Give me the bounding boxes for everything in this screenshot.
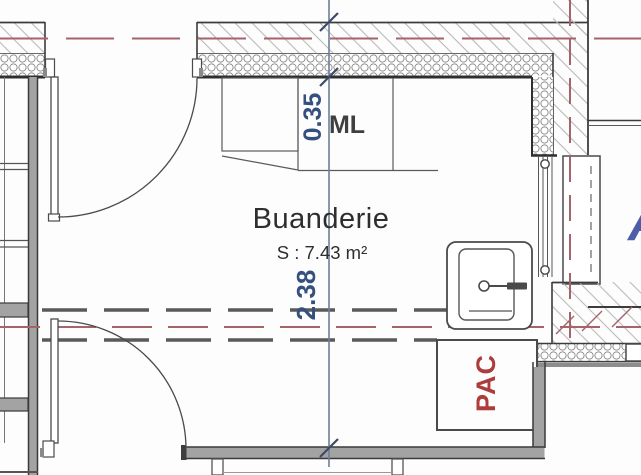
surface-area-label: S : 7.43 m² <box>277 242 367 263</box>
dim-room-width: 2.38 <box>291 270 321 321</box>
floor-plan-canvas: Buanderie S : 7.43 m² ML 0.35 2.38 PAC A <box>0 0 641 475</box>
opening-post <box>212 459 223 475</box>
dim-wall-thickness: 0.35 <box>299 93 327 142</box>
faucet-spout <box>507 283 527 290</box>
insulation-corner <box>533 77 553 156</box>
cabinet <box>222 78 298 151</box>
door-jamb <box>43 441 54 457</box>
opening-post <box>392 459 403 475</box>
insulation-band-bottom-right <box>532 343 641 361</box>
insulation-band-left <box>0 55 45 76</box>
room-name-label: Buanderie <box>253 203 390 235</box>
washing-machine-label: ML <box>329 111 365 139</box>
window-handle-bottom <box>541 266 549 274</box>
heat-pump-label: PAC <box>471 354 501 412</box>
adjacent-room-letter: A <box>626 194 641 252</box>
window-handle-top <box>541 160 549 168</box>
floor-plan: Buanderie S : 7.43 m² ML 0.35 2.38 PAC A <box>0 0 641 475</box>
pier <box>626 344 641 361</box>
door-leaf <box>51 77 58 216</box>
insulation-band-right <box>197 55 553 76</box>
faucet <box>479 281 489 291</box>
wall-stub <box>0 303 28 317</box>
wall-stub <box>0 398 28 411</box>
sink <box>447 242 532 329</box>
door-leaf <box>51 319 58 443</box>
window-frame-box <box>563 156 600 284</box>
